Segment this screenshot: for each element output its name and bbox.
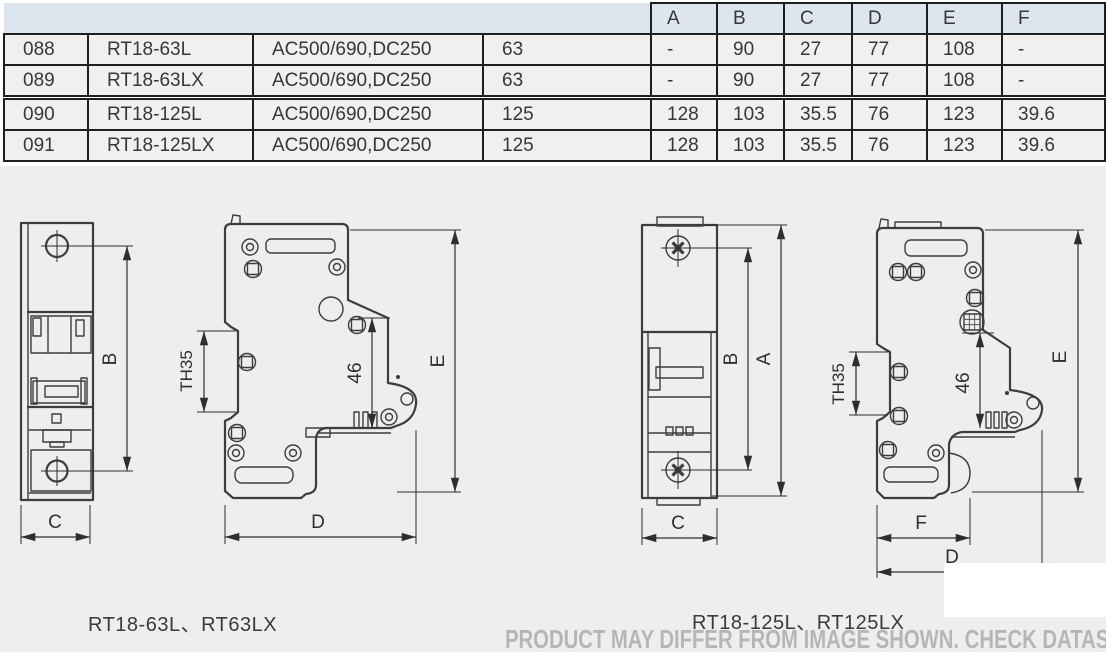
cell-dim-c: 35.5 [784,130,852,161]
cell-no: 089 [4,65,88,98]
dim-label-b: B [100,353,121,366]
header-dim-b: B [717,3,784,34]
cell-voltage: AC500/690,DC250 [253,34,483,65]
cell-dim-e: 108 [927,65,1002,98]
cell-current: 63 [483,65,651,98]
cell-dim-f: - [1002,65,1105,98]
dim-label-a: A [754,352,775,365]
cell-dim-e: 123 [927,130,1002,161]
dim-label-th35: TH35 [177,350,196,392]
side-view-right [877,219,1042,498]
datasheet-page: A B C D E F 088 RT18-63L AC500/690,DC250… [0,0,1106,658]
dim-label-f: F [915,513,927,534]
dim-label-46: 46 [345,362,366,383]
cell-voltage: AC500/690,DC250 [253,98,483,131]
cell-dim-f: 39.6 [1002,98,1105,131]
dim-label-e: E [428,355,449,368]
cell-dim-b: 103 [717,130,784,161]
top-pin [231,215,240,224]
cell-dim-f: - [1002,34,1105,65]
top-slot [905,240,967,256]
cell-dim-b: 90 [717,65,784,98]
dim-label-46: 46 [953,372,974,393]
dim-label-b: B [721,353,742,366]
cell-no: 090 [4,98,88,131]
dims-side-left: TH35 46 E D [177,230,461,544]
cell-model: RT18-63LX [88,65,253,98]
cell-dim-d: 76 [852,130,927,161]
header-dim-f: F [1002,3,1105,34]
side-view-left [225,215,416,498]
cell-model: RT18-125L [88,98,253,131]
header-dim-c: C [784,3,852,34]
bottom-slot [884,467,938,482]
cell-current: 125 [483,130,651,161]
spec-table: A B C D E F 088 RT18-63L AC500/690,DC250… [3,2,1106,162]
table-row: 088 RT18-63L AC500/690,DC250 63 - 90 27 … [4,34,1105,65]
table-header-row: A B C D E F [4,3,1105,34]
cell-dim-d: 76 [852,98,927,131]
cell-voltage: AC500/690,DC250 [253,65,483,98]
dims-side-right: TH35 46 E F D [829,230,1084,578]
header-dim-d: D [852,3,927,34]
table-row: 089 RT18-63LX AC500/690,DC250 63 - 90 27… [4,65,1105,98]
overlay-patch [944,563,1106,617]
cell-voltage: AC500/690,DC250 [253,130,483,161]
top-slot [266,239,335,253]
cell-model: RT18-125LX [88,130,253,161]
top-pin [879,219,888,228]
cell-dim-c: 27 [784,65,852,98]
cell-current: 125 [483,98,651,131]
dim-label-c: C [671,513,685,534]
table-row: 090 RT18-125L AC500/690,DC250 125 128 10… [4,98,1105,131]
header-dim-a: A [651,3,717,34]
dim-label-th35: TH35 [829,363,848,405]
cell-dim-e: 123 [927,98,1002,131]
cell-model: RT18-63L [88,34,253,65]
cell-dim-a: - [651,34,717,65]
bottom-slot [235,467,293,483]
cell-dim-a: 128 [651,98,717,131]
cell-no: 091 [4,130,88,161]
lever-hole [401,393,413,405]
cell-dim-d: 77 [852,34,927,65]
header-dim-e: E [927,3,1002,34]
dim-label-c: C [48,512,62,533]
cell-dim-f: 39.6 [1002,130,1105,161]
cell-dim-d: 77 [852,65,927,98]
cell-dim-a: - [651,65,717,98]
watermark-text: PRODUCT MAY DIFFER FROM IMAGE SHOWN. CHE… [505,624,1106,655]
dim-label-d: D [311,512,325,533]
header-blank-cell [4,3,651,34]
cell-current: 63 [483,34,651,65]
cell-dim-c: 27 [784,34,852,65]
cell-dim-b: 103 [717,98,784,131]
cell-dim-c: 35.5 [784,98,852,131]
cell-dim-b: 90 [717,34,784,65]
lever-hole [1027,397,1039,409]
technical-drawings: B C [0,160,1106,658]
caption-left: RT18-63L、RT63LX [88,608,277,637]
dim-label-e: E [1050,351,1071,364]
cell-dim-e: 108 [927,34,1002,65]
table-row: 091 RT18-125LX AC500/690,DC250 125 128 1… [4,130,1105,161]
cell-dim-a: 128 [651,130,717,161]
cell-no: 088 [4,34,88,65]
